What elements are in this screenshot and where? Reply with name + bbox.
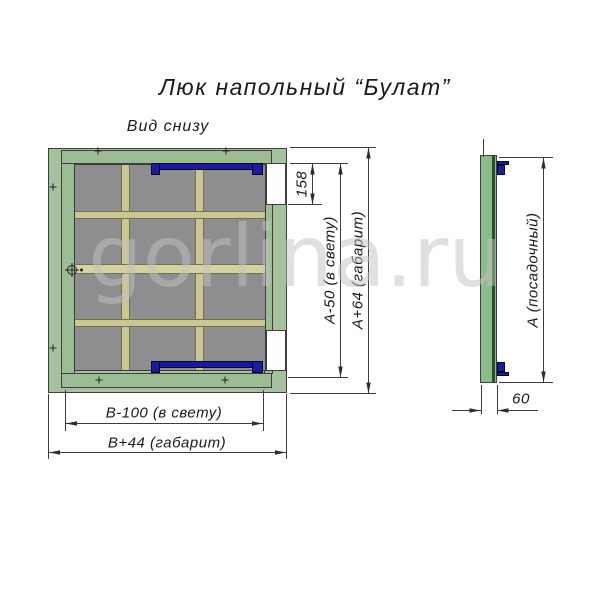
hinge-top-bracket-right	[252, 163, 263, 175]
drawing-canvas: Люк напольный “Булат” Вид снизу	[0, 0, 600, 600]
dim-label-158: 158	[294, 171, 311, 198]
dim-label-height-clear: А-50 (в свету)	[322, 216, 339, 324]
dim-label-width-clear: В-100 (в свету)	[106, 405, 223, 422]
dim-label-width-overall: В+44 (габарит)	[108, 435, 226, 452]
hinge-bottom-bracket-right	[252, 361, 263, 373]
hinge-bottom-bracket-left	[151, 361, 160, 373]
view-label: Вид снизу	[98, 118, 238, 136]
hinge-top-bracket-left	[151, 163, 160, 175]
dim-label-depth-60: 60	[512, 391, 530, 408]
hinge-bottom	[155, 361, 259, 368]
dim-label-height-seat: А (посадочный)	[525, 213, 542, 328]
center-target-icon	[65, 263, 83, 277]
dim-label-height-overall: А+64 (габарит)	[350, 211, 367, 329]
hinge-top	[155, 163, 259, 170]
screw-marks	[50, 148, 230, 384]
drawing-title: Люк напольный “Булат”	[105, 74, 505, 101]
